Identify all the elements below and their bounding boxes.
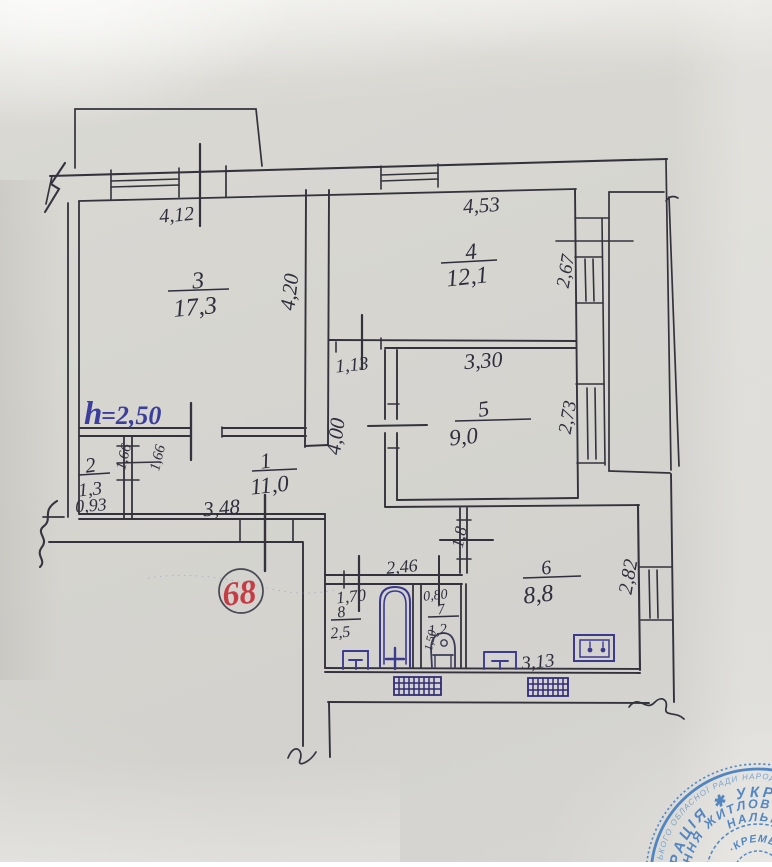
svg-text:9,0: 9,0 xyxy=(448,423,480,451)
svg-text:68: 68 xyxy=(220,574,258,614)
svg-text:12,1: 12,1 xyxy=(445,262,489,292)
svg-text:3,30: 3,30 xyxy=(462,347,503,375)
svg-text:6: 6 xyxy=(540,557,553,580)
svg-text:8,8: 8,8 xyxy=(522,581,555,610)
svg-text:2,5: 2,5 xyxy=(329,624,351,643)
svg-text:1,13: 1,13 xyxy=(334,353,369,377)
svg-text:17,3: 17,3 xyxy=(172,292,218,323)
svg-text:3,13: 3,13 xyxy=(519,650,555,674)
svg-text:11,0: 11,0 xyxy=(249,471,290,500)
svg-text:=2,50: =2,50 xyxy=(101,401,161,430)
svg-text:4,53: 4,53 xyxy=(462,192,500,219)
svg-text:0,80: 0,80 xyxy=(422,587,448,604)
svg-text:2,46: 2,46 xyxy=(385,555,418,578)
svg-text:4,00: 4,00 xyxy=(321,416,350,456)
svg-text:4,12: 4,12 xyxy=(158,203,195,228)
svg-text:4,20: 4,20 xyxy=(275,272,303,312)
svg-text:1,66: 1,66 xyxy=(147,443,169,473)
svg-text:5: 5 xyxy=(476,396,490,422)
svg-text:0,93: 0,93 xyxy=(74,494,107,516)
svg-text:1,50: 1,50 xyxy=(421,629,439,652)
svg-text:h: h xyxy=(84,396,102,432)
svg-text:1,70: 1,70 xyxy=(335,585,367,607)
svg-text:·КРЕМЕНЧ: ·КРЕМЕНЧ xyxy=(727,833,772,860)
svg-text:3,48: 3,48 xyxy=(201,494,241,521)
